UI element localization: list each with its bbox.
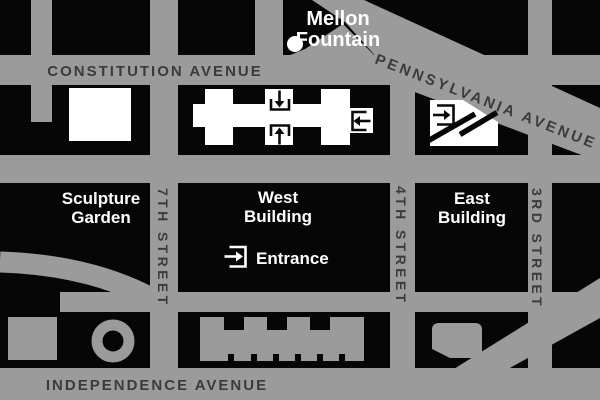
- building-southwest-square: [8, 317, 57, 360]
- entrance-label: Entrance: [256, 249, 329, 268]
- mellon-fountain-label-line2: Fountain: [296, 29, 380, 51]
- street-madison-drive: [0, 155, 600, 183]
- map-canvas: Entrance Mellon Fountain CONSTITUTION AV…: [0, 0, 600, 400]
- sculpture-garden-label-line1: Sculpture: [62, 189, 140, 208]
- west-building-label-line1: West: [258, 188, 299, 207]
- city-map: Entrance Mellon Fountain CONSTITUTION AV…: [0, 0, 600, 400]
- mellon-fountain-label-line1: Mellon: [306, 8, 369, 30]
- west-building-label-line2: Building: [244, 207, 312, 226]
- independence-avenue-label: INDEPENDENCE AVENUE: [46, 377, 268, 394]
- east-building-label-line1: East: [454, 189, 490, 208]
- east-building-label-line2: Building: [438, 208, 506, 227]
- fourth-street-label: 4TH STREET: [393, 186, 409, 306]
- seventh-street-label: 7TH STREET: [155, 188, 171, 308]
- sculpture-garden-label-line2: Garden: [71, 208, 131, 227]
- building-crenellated: [200, 317, 364, 361]
- third-street-label: 3RD STREET: [529, 188, 545, 309]
- west-building-footprint: [193, 89, 373, 145]
- building-southeast-rounded: [432, 323, 482, 358]
- street-ninth-street-stub: [31, 0, 52, 122]
- sculpture-garden-pavilion: [69, 88, 131, 141]
- constitution-avenue-label: CONSTITUTION AVENUE: [47, 63, 263, 80]
